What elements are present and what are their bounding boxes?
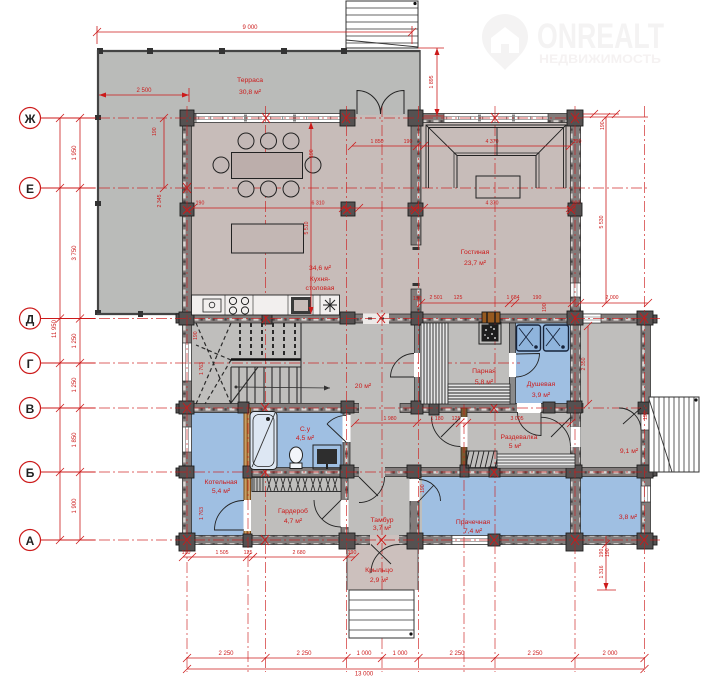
svg-text:2 250: 2 250	[527, 651, 543, 657]
svg-text:9 000: 9 000	[242, 25, 258, 31]
svg-text:Гостиная: Гостиная	[461, 249, 490, 256]
svg-text:5 510: 5 510	[304, 221, 310, 234]
svg-text:1 250: 1 250	[72, 333, 78, 349]
svg-text:11 950: 11 950	[52, 319, 58, 338]
svg-text:20 м²: 20 м²	[355, 383, 372, 390]
svg-text:34,6 м²: 34,6 м²	[309, 265, 332, 272]
svg-text:2 250: 2 250	[296, 651, 312, 657]
svg-text:2 000: 2 000	[606, 295, 619, 301]
svg-text:23,7 м²: 23,7 м²	[464, 260, 487, 267]
svg-text:Д: Д	[26, 313, 35, 327]
svg-text:1 250: 1 250	[72, 377, 78, 393]
svg-text:1 763: 1 763	[199, 362, 205, 375]
svg-text:Крыльцо: Крыльцо	[365, 567, 393, 574]
svg-text:2 501: 2 501	[430, 295, 443, 301]
svg-text:1 900: 1 900	[72, 498, 78, 514]
svg-text:Котельная: Котельная	[205, 479, 238, 486]
svg-text:190: 190	[643, 411, 649, 420]
svg-text:столовая: столовая	[306, 285, 335, 292]
svg-text:13 000: 13 000	[355, 672, 374, 677]
svg-text:2 345: 2 345	[157, 194, 163, 207]
svg-text:Раздевалка: Раздевалка	[501, 434, 538, 441]
svg-text:5 м²: 5 м²	[509, 443, 522, 450]
svg-text:Ж: Ж	[24, 112, 36, 126]
svg-text:1 316: 1 316	[599, 565, 605, 578]
svg-text:Е: Е	[26, 182, 34, 196]
svg-text:2,9 м²: 2,9 м²	[370, 577, 389, 584]
svg-text:7,4 м²: 7,4 м²	[464, 528, 483, 535]
svg-text:2 500: 2 500	[136, 88, 152, 94]
svg-text:2 000: 2 000	[602, 651, 618, 657]
svg-text:С.у: С.у	[300, 426, 311, 433]
svg-text:190: 190	[404, 139, 413, 145]
svg-text:Тамбур: Тамбур	[370, 516, 393, 524]
svg-text:125: 125	[452, 416, 461, 422]
svg-text:Парная: Парная	[472, 368, 496, 375]
svg-text:Прачечная: Прачечная	[456, 519, 490, 526]
svg-text:1 895: 1 895	[429, 75, 435, 88]
svg-text:3,8 м²: 3,8 м²	[619, 514, 638, 521]
svg-text:1 180: 1 180	[431, 416, 444, 422]
svg-text:190: 190	[348, 550, 357, 556]
svg-text:2 680: 2 680	[293, 550, 306, 556]
svg-text:1 950: 1 950	[72, 145, 78, 161]
svg-text:1 850: 1 850	[72, 432, 78, 448]
svg-text:5,8 м²: 5,8 м²	[475, 379, 494, 386]
svg-text:30,8 м²: 30,8 м²	[239, 89, 262, 96]
svg-text:В: В	[26, 402, 35, 416]
svg-text:3 005: 3 005	[511, 416, 524, 422]
svg-text:190: 190	[542, 303, 548, 312]
svg-text:4 370: 4 370	[486, 139, 499, 145]
svg-text:1 000: 1 000	[356, 651, 372, 657]
svg-text:4,5 м²: 4,5 м²	[296, 435, 315, 442]
svg-text:190: 190	[309, 149, 315, 158]
svg-text:190: 190	[182, 550, 191, 556]
svg-text:190: 190	[533, 295, 542, 301]
svg-text:1 684: 1 684	[507, 295, 520, 301]
svg-text:9,1 м²: 9,1 м²	[620, 448, 639, 455]
svg-text:190: 190	[573, 139, 582, 145]
svg-text:125: 125	[454, 295, 463, 301]
svg-text:3,7 м²: 3,7 м²	[373, 525, 392, 532]
svg-text:6 310: 6 310	[312, 201, 325, 207]
svg-text:Терраса: Терраса	[237, 77, 263, 84]
svg-text:5 530: 5 530	[599, 215, 605, 228]
svg-text:125: 125	[244, 550, 253, 556]
svg-text:Б: Б	[26, 466, 35, 480]
svg-text:НЕДВИЖИМОСТЬ: НЕДВИЖИМОСТЬ	[539, 54, 661, 66]
svg-text:1 505: 1 505	[216, 550, 229, 556]
svg-text:190: 190	[193, 331, 199, 340]
svg-text:1 980: 1 980	[384, 416, 397, 422]
svg-text:Кухня-: Кухня-	[310, 276, 330, 283]
svg-text:2 250: 2 250	[218, 651, 234, 657]
svg-text:1 850: 1 850	[371, 139, 384, 145]
svg-text:Г: Г	[27, 357, 34, 371]
svg-text:190: 190	[420, 484, 426, 493]
svg-text:2 350: 2 350	[581, 357, 587, 370]
svg-text:190: 190	[196, 201, 205, 207]
svg-text:1 763: 1 763	[199, 507, 205, 520]
svg-text:Душевая: Душевая	[527, 381, 556, 388]
svg-text:190: 190	[600, 121, 606, 130]
svg-text:4,7 м²: 4,7 м²	[284, 518, 303, 525]
svg-text:5,4 м²: 5,4 м²	[212, 488, 231, 495]
svg-text:А: А	[26, 534, 35, 548]
svg-text:190: 190	[152, 127, 158, 136]
svg-text:Гардероб: Гардероб	[278, 507, 308, 515]
svg-text:190: 190	[572, 201, 581, 207]
svg-text:ONREALT: ONREALT	[537, 17, 664, 56]
svg-text:190: 190	[605, 548, 611, 557]
svg-text:2 250: 2 250	[449, 651, 465, 657]
svg-text:190: 190	[413, 296, 422, 302]
svg-text:4 370: 4 370	[486, 201, 499, 207]
svg-text:3 750: 3 750	[72, 245, 78, 261]
svg-text:1 000: 1 000	[392, 651, 408, 657]
svg-text:3,9 м²: 3,9 м²	[532, 392, 551, 399]
